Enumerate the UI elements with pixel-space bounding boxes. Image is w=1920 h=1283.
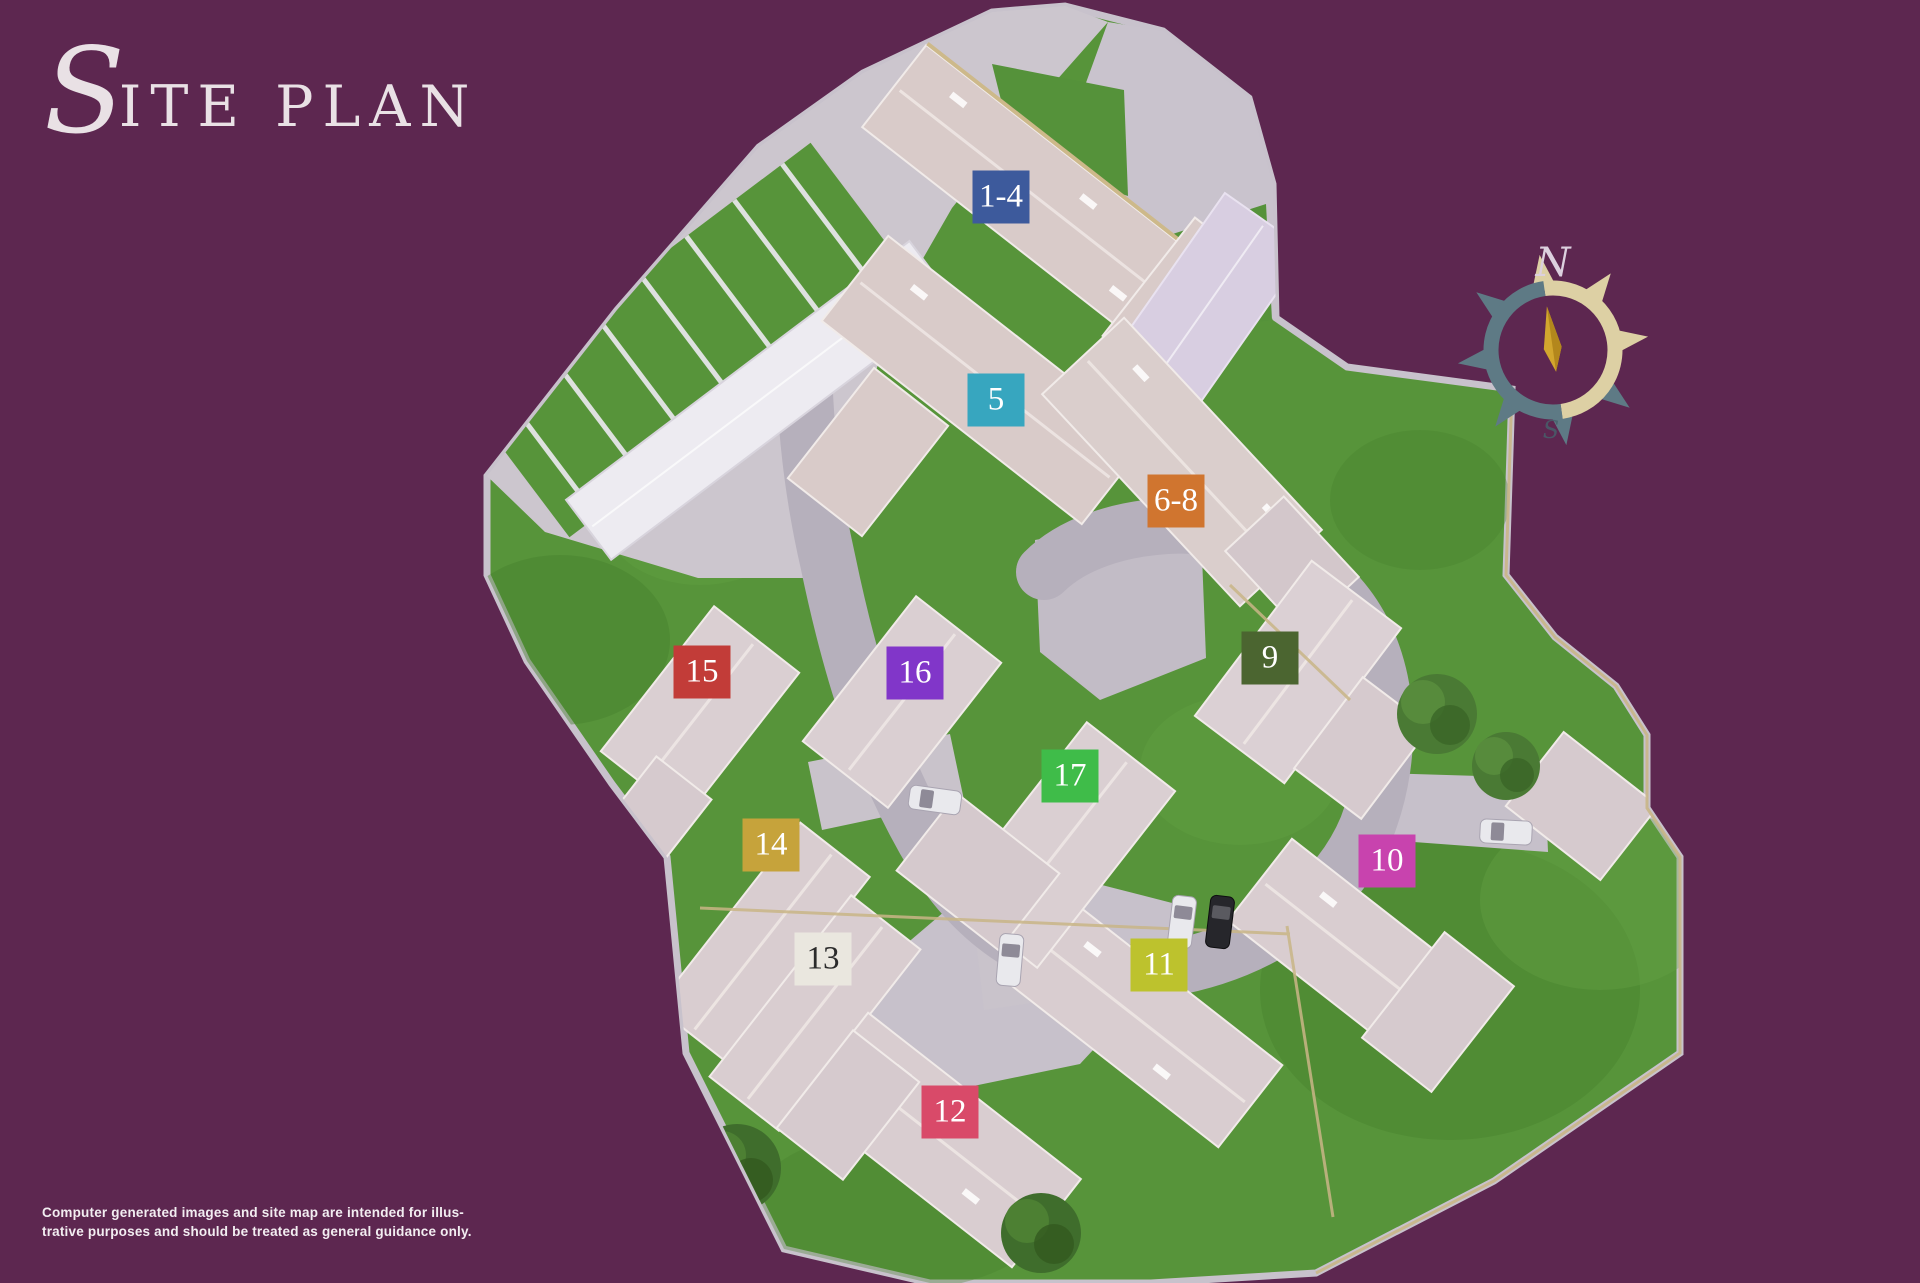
disclaimer-text: Computer generated images and site map a… [42, 1204, 472, 1242]
car [1479, 819, 1532, 846]
disclaimer-line-1: Computer generated images and site map a… [42, 1204, 472, 1223]
site-plan-page: { "page": { "background_color": "#5d2750… [0, 0, 1920, 1283]
plot-marker-16: 16 [887, 647, 944, 700]
site-plan-map: N S 1-456-891011121314151617 SITE PLAN C… [0, 0, 1920, 1283]
car [996, 933, 1024, 987]
tree [1472, 732, 1540, 800]
plot-marker-12: 12 [922, 1086, 979, 1139]
tree [1397, 674, 1477, 754]
plot-marker-6-8: 6-8 [1148, 475, 1205, 528]
compass-south-label: S [1543, 416, 1559, 444]
tree [1001, 1193, 1081, 1273]
plot-marker-15: 15 [674, 646, 731, 699]
plot-marker-11: 11 [1131, 939, 1188, 992]
plot-marker-1-4: 1-4 [973, 171, 1030, 224]
tree [1578, 1206, 1646, 1274]
plot-marker-10: 10 [1359, 835, 1416, 888]
title-initial: S [44, 32, 125, 150]
tree [569, 820, 645, 896]
title-rest: ITE PLAN [119, 79, 479, 136]
tree [693, 1124, 781, 1212]
tree [1662, 1092, 1714, 1144]
compass-north-label: N [1535, 240, 1573, 286]
plot-marker-17: 17 [1042, 750, 1099, 803]
plot-marker-13: 13 [795, 933, 852, 986]
disclaimer-line-2: trative purposes and should be treated a… [42, 1223, 472, 1242]
plot-marker-9: 9 [1242, 632, 1299, 685]
plot-marker-14: 14 [743, 819, 800, 872]
page-title: SITE PLAN [44, 26, 478, 144]
plot-marker-5: 5 [968, 374, 1025, 427]
